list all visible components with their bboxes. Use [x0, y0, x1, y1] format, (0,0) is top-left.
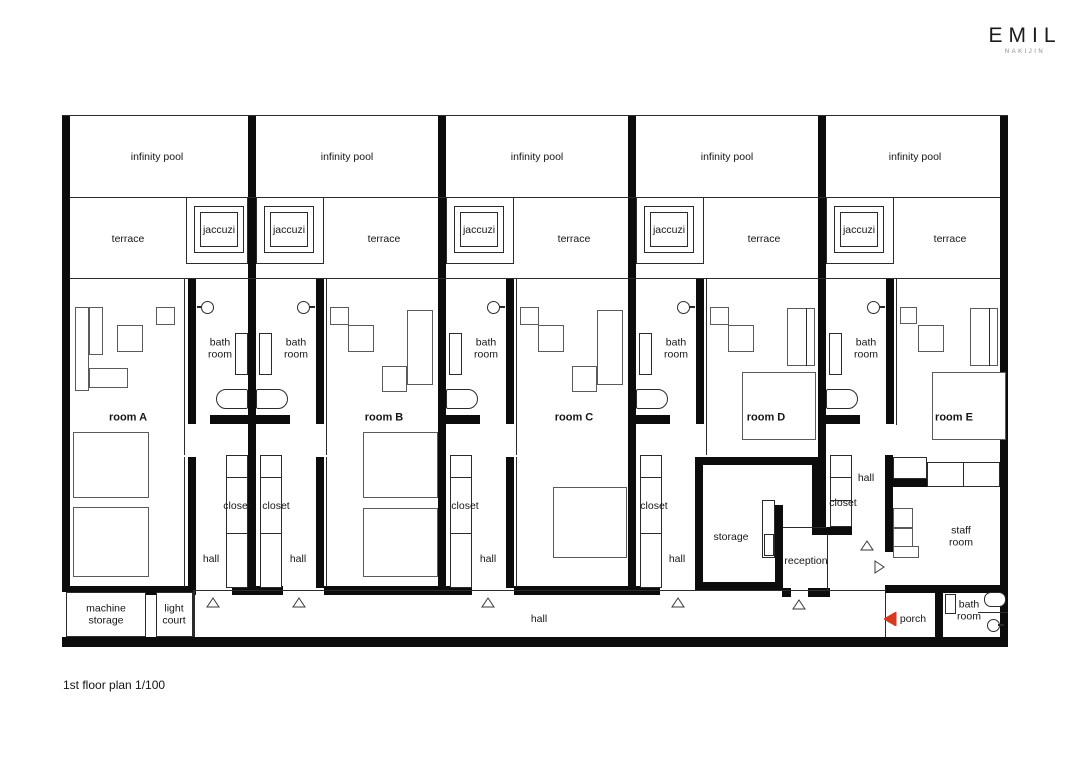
door-marker-icon	[874, 560, 885, 574]
sink-tick	[309, 306, 315, 308]
room-label: terrace	[920, 233, 980, 245]
line	[226, 533, 248, 534]
line	[963, 463, 964, 486]
furniture	[742, 372, 816, 440]
bathtub-icon	[826, 389, 858, 409]
line	[806, 308, 807, 366]
room-label: bath room	[658, 337, 694, 362]
room-label: infinity pool	[117, 151, 197, 163]
door-marker-icon	[792, 597, 806, 608]
fixture-box	[260, 455, 282, 588]
room-label: jaccuzi	[263, 224, 315, 236]
room-label: light court	[156, 603, 192, 628]
room-label: closet	[216, 500, 258, 512]
furniture	[89, 368, 128, 388]
room-label: infinity pool	[687, 151, 767, 163]
line	[184, 278, 185, 455]
room-label: bath room	[468, 337, 504, 362]
room-label: jaccuzi	[453, 224, 505, 236]
room-label: bath room	[952, 599, 986, 624]
sink-tick	[689, 306, 695, 308]
wall	[506, 278, 514, 424]
wall	[316, 457, 324, 588]
room-label: reception	[773, 555, 839, 567]
room-label: terrace	[734, 233, 794, 245]
sink-tick	[879, 306, 885, 308]
wall	[775, 505, 783, 590]
line	[193, 590, 194, 637]
line	[70, 278, 1000, 279]
furniture	[893, 508, 913, 528]
room-label: closet	[822, 497, 864, 509]
furniture	[407, 310, 433, 385]
room-label: bath room	[202, 337, 238, 362]
furniture	[728, 325, 754, 352]
wall	[248, 115, 256, 588]
room-label: terrace	[544, 233, 604, 245]
door-marker-icon	[481, 595, 495, 606]
wall	[62, 637, 1008, 647]
bathtub-icon	[636, 389, 668, 409]
room-label: porch	[891, 613, 935, 625]
wall	[438, 115, 446, 588]
room-label: room D	[736, 412, 796, 425]
wall	[444, 415, 480, 424]
bathtub-icon	[446, 389, 478, 409]
room-label: closet	[444, 500, 486, 512]
furniture	[893, 546, 919, 558]
room-label: jaccuzi	[643, 224, 695, 236]
wall	[812, 527, 852, 535]
room-label: infinity pool	[497, 151, 577, 163]
room-label: storage	[701, 531, 761, 543]
line	[516, 457, 517, 587]
wall	[935, 585, 943, 647]
fixture-box	[450, 455, 472, 588]
room-label: infinity pool	[307, 151, 387, 163]
room-label: hall	[851, 472, 881, 484]
line	[226, 477, 248, 478]
wall	[824, 415, 860, 424]
door-marker-icon	[206, 595, 220, 606]
furniture	[520, 307, 539, 325]
wall	[893, 479, 927, 487]
line	[70, 197, 1000, 198]
wall	[634, 415, 670, 424]
line	[194, 590, 886, 591]
furniture	[75, 307, 89, 391]
furniture	[932, 372, 1006, 440]
furniture	[787, 308, 815, 366]
fixture-box	[830, 455, 852, 527]
room-label: jaccuzi	[193, 224, 245, 236]
line	[640, 533, 662, 534]
wall	[812, 457, 820, 535]
wall	[885, 585, 935, 593]
room-label: closet	[255, 500, 297, 512]
room-label: staff room	[941, 525, 981, 550]
line	[194, 590, 195, 637]
furniture	[73, 432, 149, 498]
wall	[695, 457, 703, 590]
wall	[886, 278, 894, 424]
toilet-icon	[984, 592, 1006, 607]
fixture-box	[449, 333, 462, 375]
room-label: terrace	[354, 233, 414, 245]
fixture-box	[259, 333, 272, 375]
furniture	[117, 325, 143, 352]
furniture	[382, 366, 407, 392]
fixture-box	[829, 333, 842, 375]
furniture	[572, 366, 597, 392]
room-label: terrace	[98, 233, 158, 245]
furniture	[89, 307, 103, 355]
fixture-box	[764, 534, 774, 556]
furniture	[918, 325, 944, 352]
sink-tick	[197, 306, 202, 308]
line	[326, 278, 327, 455]
bathtub-icon	[256, 389, 288, 409]
wall	[695, 457, 820, 465]
wall	[254, 415, 290, 424]
room-label: bath room	[848, 337, 884, 362]
room-label: hall	[473, 553, 503, 565]
furniture	[73, 507, 149, 577]
furniture	[597, 310, 623, 385]
door-marker-icon	[671, 595, 685, 606]
room-label: closet	[633, 500, 675, 512]
furniture	[330, 307, 349, 325]
line	[830, 477, 852, 478]
room-label: hall	[196, 553, 226, 565]
room-label: room B	[354, 412, 414, 425]
line	[783, 527, 827, 528]
room-label: machine storage	[76, 603, 136, 628]
room-label: hall	[662, 553, 692, 565]
furniture	[363, 432, 438, 498]
fixture-box	[893, 457, 927, 479]
wall	[188, 278, 196, 424]
furniture	[900, 307, 917, 324]
room-label: room A	[98, 412, 158, 425]
sink-tick	[499, 306, 505, 308]
floor-plan-drawing: infinity poolinfinity poolinfinity pooli…	[0, 0, 1080, 764]
fixture-box	[640, 455, 662, 588]
wall	[316, 278, 324, 424]
line	[516, 278, 517, 455]
line	[706, 278, 707, 455]
line	[326, 457, 327, 587]
furniture	[710, 307, 729, 325]
door-marker-icon	[292, 595, 306, 606]
plan-title: 1st floor plan 1/100	[63, 678, 165, 692]
line	[640, 477, 662, 478]
room-label: room C	[544, 412, 604, 425]
line	[260, 477, 282, 478]
line	[62, 115, 1008, 116]
fixture-box	[639, 333, 652, 375]
wall	[885, 455, 893, 552]
door-marker-icon	[860, 538, 874, 549]
room-label: hall	[519, 613, 559, 625]
furniture	[363, 508, 438, 577]
sink-tick	[998, 624, 1004, 626]
wall	[62, 115, 70, 592]
bathtub-icon	[216, 389, 248, 409]
furniture	[970, 308, 998, 366]
wall	[696, 278, 704, 424]
fixture-box	[226, 455, 248, 588]
sink-icon	[201, 301, 214, 314]
furniture	[893, 528, 913, 548]
line	[896, 278, 897, 425]
line	[184, 457, 185, 587]
line	[450, 533, 472, 534]
line	[989, 308, 990, 366]
line	[450, 477, 472, 478]
room-label: room E	[924, 412, 984, 425]
furniture	[553, 487, 627, 558]
line	[260, 533, 282, 534]
furniture	[156, 307, 175, 325]
room-label: jaccuzi	[833, 224, 885, 236]
wall	[628, 115, 636, 588]
wall	[695, 582, 782, 590]
wall	[188, 457, 196, 588]
wall	[210, 415, 248, 424]
room-label: infinity pool	[875, 151, 955, 163]
floor-plan-sheet: EMIL NAKIJIN infinity poolinfinity pooli…	[0, 0, 1080, 764]
room-label: bath room	[278, 337, 314, 362]
wall	[506, 457, 514, 588]
furniture	[348, 325, 374, 352]
furniture	[538, 325, 564, 352]
room-label: hall	[283, 553, 313, 565]
